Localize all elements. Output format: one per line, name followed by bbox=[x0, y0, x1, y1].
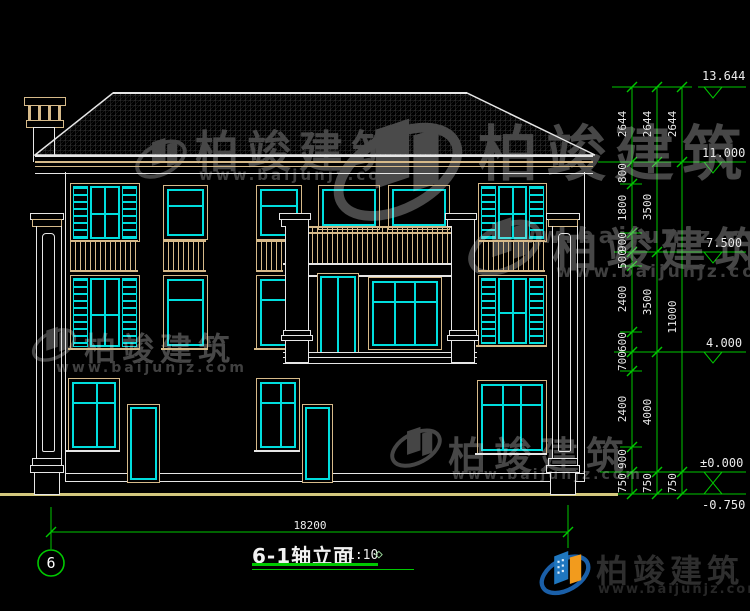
shutter-louvers bbox=[73, 186, 88, 239]
dim-label: 4000 bbox=[641, 382, 655, 442]
transom-bar bbox=[262, 205, 296, 207]
balcony-door bbox=[317, 273, 359, 359]
mullion bbox=[394, 283, 396, 344]
watermark-url: www.baijunjz.com bbox=[556, 262, 750, 282]
louver-band bbox=[163, 240, 206, 272]
mullion bbox=[414, 283, 416, 344]
transom-bar bbox=[374, 301, 436, 303]
chimney-post bbox=[28, 105, 31, 120]
window-2f-center bbox=[368, 277, 442, 350]
mullion bbox=[96, 384, 98, 446]
level-label: 13.644 bbox=[702, 69, 745, 83]
window-sill bbox=[254, 450, 300, 452]
drawing-scale: 1:10 bbox=[347, 548, 378, 563]
door-mullion bbox=[337, 278, 339, 354]
level-label: 4.000 bbox=[706, 336, 742, 350]
chimney-post bbox=[48, 105, 51, 120]
door-glazing bbox=[130, 407, 157, 480]
window-sash bbox=[372, 281, 438, 346]
transom-bar bbox=[74, 402, 114, 404]
window-sill bbox=[476, 345, 547, 347]
shutter-louvers bbox=[529, 278, 544, 344]
chimney-post bbox=[38, 105, 41, 120]
watermark-logo-icon bbox=[328, 94, 468, 244]
watermark-logo-icon bbox=[462, 206, 548, 286]
transom-bar bbox=[262, 402, 294, 404]
window-1f-left bbox=[68, 378, 120, 452]
window-sill bbox=[66, 450, 120, 452]
door-glazing bbox=[320, 276, 356, 356]
watermark-url: www.baijunjz.com bbox=[452, 467, 643, 483]
dim-label: 11000 bbox=[666, 287, 680, 347]
overall-width-dim: 18200 bbox=[282, 519, 338, 532]
window-1f-center bbox=[256, 378, 300, 452]
door-1f-center bbox=[302, 404, 333, 483]
transom-bar bbox=[483, 404, 541, 406]
louver-band bbox=[70, 240, 138, 272]
brand-logo-url: www.baijunjz.com bbox=[598, 582, 750, 597]
dim-label: 750 bbox=[666, 453, 680, 513]
dim-label: 750 bbox=[641, 453, 655, 513]
window-sash bbox=[260, 382, 296, 448]
title-underline-thin bbox=[252, 569, 414, 570]
title-underline-thick bbox=[252, 563, 378, 566]
window-sash bbox=[72, 382, 116, 448]
axis-bubble-number: 6 bbox=[41, 554, 61, 572]
watermark-url: www.baijunjz.com bbox=[56, 360, 247, 376]
door-glazing bbox=[305, 407, 330, 480]
window-sash bbox=[90, 186, 120, 239]
shutter-louvers bbox=[481, 278, 496, 344]
level-label: -0.750 bbox=[702, 498, 745, 512]
watermark-brand: 柏竣建筑 bbox=[478, 106, 750, 193]
window-sash bbox=[498, 278, 527, 344]
level-label: ±0.000 bbox=[700, 456, 743, 470]
elevation-drawing-canvas: 2644 800 1800 900 500 2400 600 700 2400 … bbox=[0, 0, 750, 611]
balcony-slab bbox=[283, 263, 475, 277]
bay-sill-band bbox=[283, 352, 477, 364]
ground-line bbox=[0, 493, 618, 496]
door-1f-left bbox=[127, 404, 160, 483]
brand-logo-icon bbox=[538, 540, 592, 602]
chimney-post bbox=[58, 105, 61, 120]
watermark-logo-icon bbox=[388, 419, 444, 475]
transom-bar bbox=[169, 299, 202, 301]
transom-bar bbox=[169, 205, 202, 207]
watermark-logo-icon bbox=[133, 112, 189, 204]
window-3f-left-shuttered bbox=[70, 183, 140, 242]
diamond-symbol: ◇ bbox=[375, 547, 383, 562]
mullion bbox=[280, 384, 282, 446]
